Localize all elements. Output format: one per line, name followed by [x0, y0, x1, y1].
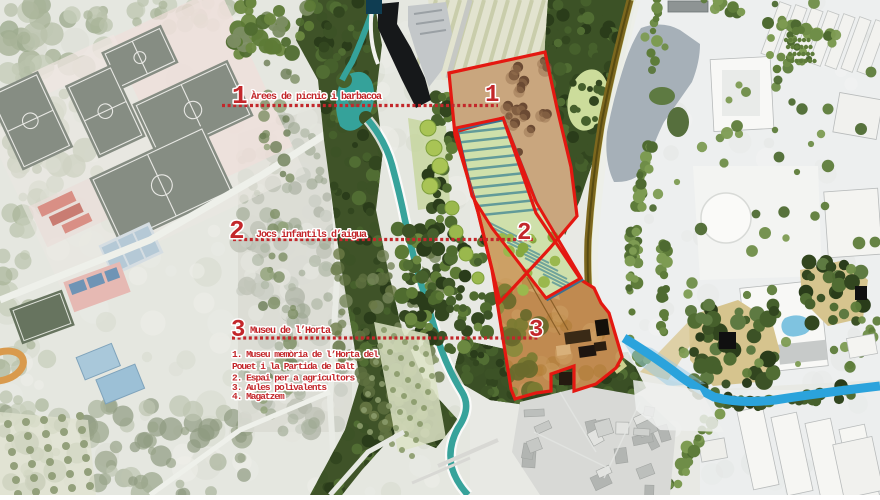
- svg-text:2: 2: [229, 216, 245, 246]
- svg-text:1: 1: [232, 81, 248, 111]
- svg-text:4. Magatzem: 4. Magatzem: [232, 391, 285, 402]
- svg-text:Pouet i la Partida de Dalt: Pouet i la Partida de Dalt: [232, 361, 355, 372]
- svg-text:2: 2: [517, 220, 531, 247]
- svg-text:3: 3: [529, 317, 543, 344]
- svg-text:Jocs infantils d’aigua: Jocs infantils d’aigua: [256, 229, 367, 241]
- svg-text:1: 1: [485, 82, 499, 109]
- svg-text:3: 3: [231, 317, 245, 344]
- svg-text:Museu de l’Horta: Museu de l’Horta: [250, 325, 331, 337]
- svg-text:Àrees de picnic i barbacoa: Àrees de picnic i barbacoa: [251, 89, 382, 103]
- svg-text:1. Museu memòria de l’Horta de: 1. Museu memòria de l’Horta del: [232, 349, 379, 360]
